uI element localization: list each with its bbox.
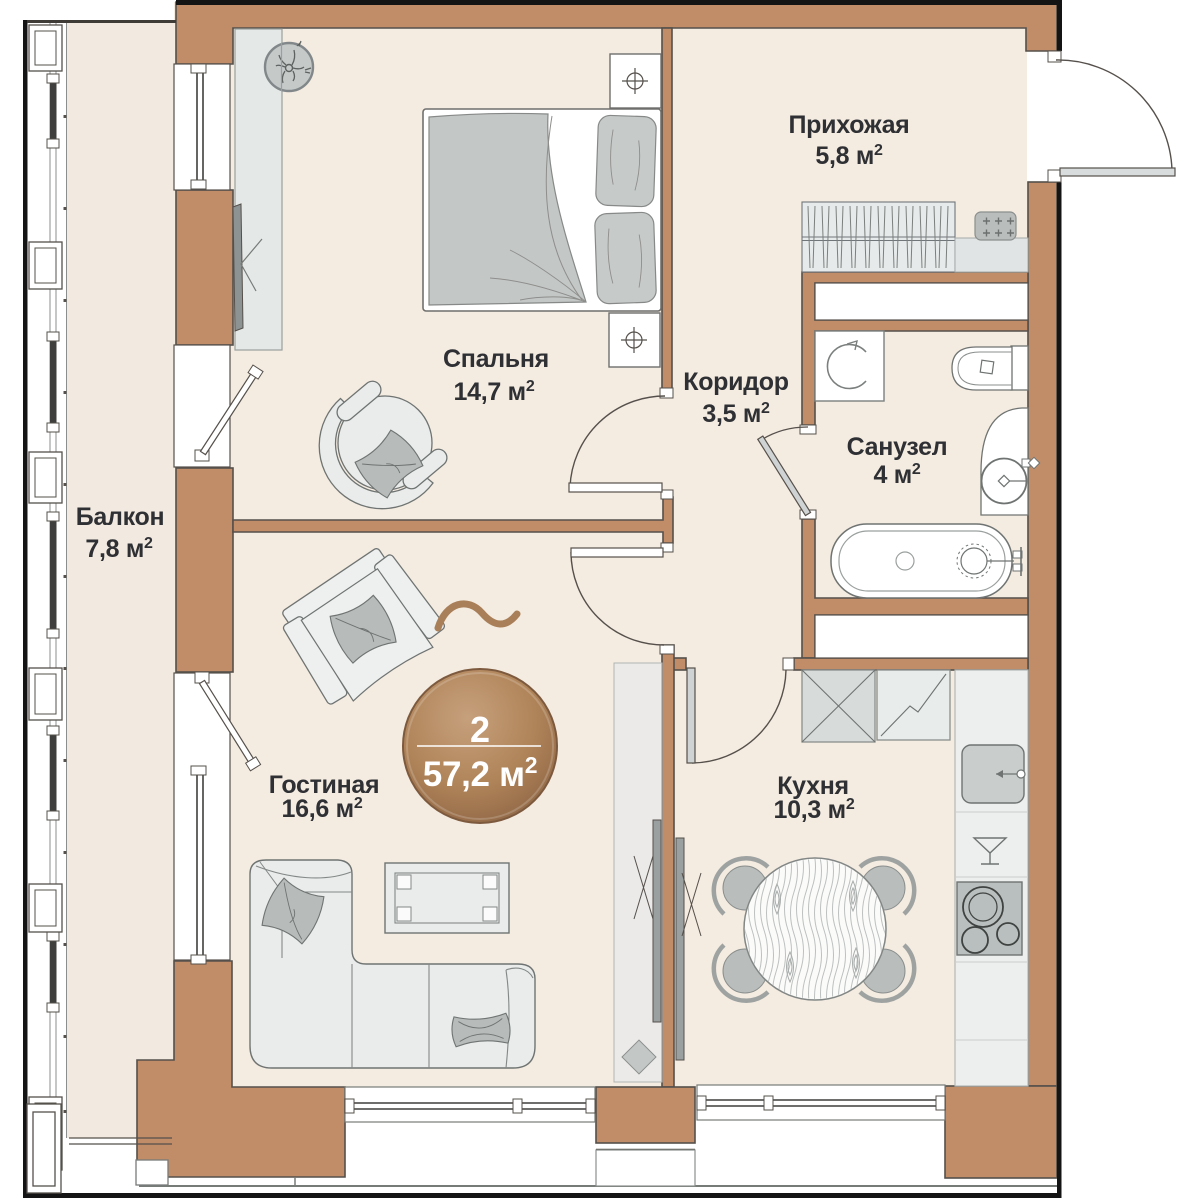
svg-text:10,3 м2: 10,3 м2 (774, 796, 855, 824)
svg-text:16,6 м2: 16,6 м2 (282, 795, 363, 823)
svg-text:7,8 м2: 7,8 м2 (85, 535, 153, 563)
svg-text:2: 2 (470, 709, 490, 750)
svg-text:Балкон: Балкон (76, 503, 165, 531)
svg-text:Прихожая: Прихожая (789, 111, 910, 139)
svg-text:3,5 м2: 3,5 м2 (702, 400, 770, 428)
svg-text:Санузел: Санузел (847, 433, 948, 461)
svg-text:57,2 м2: 57,2 м2 (423, 752, 537, 794)
svg-text:14,7 м2: 14,7 м2 (454, 378, 535, 406)
svg-text:5,8 м2: 5,8 м2 (815, 142, 883, 170)
svg-text:Спальня: Спальня (443, 345, 549, 373)
svg-text:Коридор: Коридор (683, 368, 789, 396)
